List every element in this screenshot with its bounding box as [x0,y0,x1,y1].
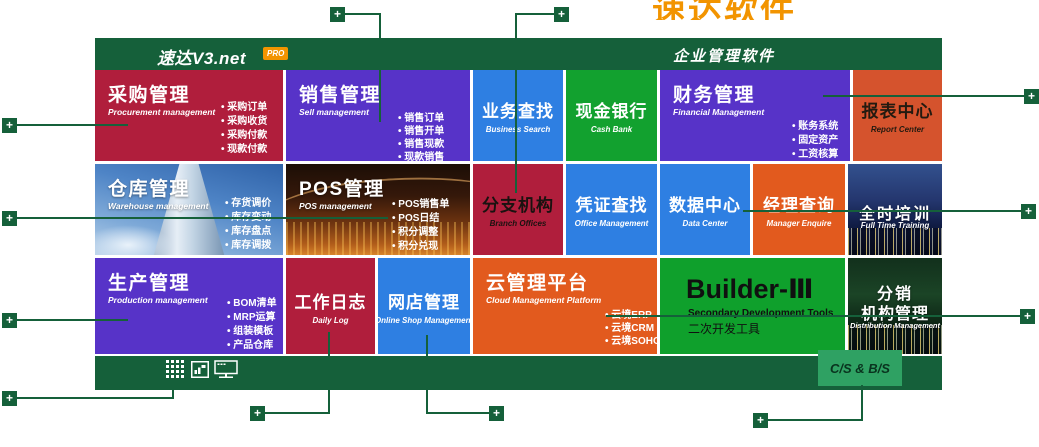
tile-title: 生产管理 [108,268,190,295]
tile-production[interactable]: 生产管理 Production management BOM清单 MRP运算 组… [95,258,283,354]
tile-cloud-platform[interactable]: 云管理平台 Cloud Management Platform 云境ERP 云境… [473,258,657,354]
tile-item[interactable]: 库存调拨 [225,239,271,253]
tile-item-list: 销售订单 销售开单 销售现款 现款销售 [398,112,444,161]
tile-title: 采购管理 [108,80,190,107]
plus-marker-top-1[interactable]: + [330,7,345,22]
tile-item[interactable]: 账务系统 [792,120,838,134]
tile-subtitle: Distribution Management [848,321,942,330]
plus-marker-bottom-1[interactable]: + [250,406,265,421]
tile-voucher-search[interactable]: 凭证查找 Office Management [566,164,657,255]
tile-business-search[interactable]: 业务查找 Business Search [473,70,563,161]
connector-line [426,335,428,414]
plus-marker-bottom-2[interactable]: + [489,406,504,421]
tile-item-list: 采购订单 采购收货 采购付款 现款付款 [221,101,267,157]
tile-item[interactable]: 积分兑现 [392,240,449,254]
plus-marker-right-3[interactable]: + [1020,309,1035,324]
tile-title: 业务查找 [482,97,554,122]
plus-marker-right-1[interactable]: + [1024,89,1039,104]
tile-item-list: BOM清单 MRP运算 组装模板 产品仓库 [227,297,277,353]
tile-item[interactable]: POS销售单 [392,198,449,212]
plus-marker-top-2[interactable]: + [554,7,569,22]
tile-item[interactable]: 组装模板 [227,325,277,339]
connector-line [516,13,555,15]
tile-item[interactable]: 存货调价 [225,197,271,211]
tile-title: POS管理 [299,174,385,201]
tile-procurement[interactable]: 采购管理 Procurement management 采购订单 采购收货 采购… [95,70,283,161]
tile-subtitle: Business Search [486,125,550,134]
tile-warehouse[interactable]: 仓库管理 Warehouse management 存货调价 库存变动 库存盘点… [95,164,283,255]
connector-line [861,385,863,421]
tile-subtitle: Manager Enquire [767,219,832,228]
plus-marker-left-3[interactable]: + [2,313,17,328]
tile-data-center[interactable]: 数据中心 Data Center [660,164,750,255]
tile-item[interactable]: 工资核算 [792,148,838,161]
connector-line [17,397,174,399]
connector-line [17,124,128,126]
tile-pos[interactable]: POS管理 POS management POS销售单 POS日结 积分调整 积… [286,164,470,255]
tile-subtitle: Online Shop Management [378,316,470,325]
tile-title: Builder-Ⅲ [686,274,814,305]
tile-subtitle: Cash Bank [591,125,632,134]
tile-item[interactable]: 销售现款 [398,138,444,151]
tile-item[interactable]: 销售订单 [398,112,444,125]
tile-title: 工作日志 [295,288,367,313]
tile-item[interactable]: 云境CRM [605,322,657,335]
tile-title: 报表中心 [862,97,934,122]
cloud-photo [95,225,173,255]
plus-marker-left-2[interactable]: + [2,211,17,226]
tile-subtitle: Full Time Training [848,221,942,230]
banner-text: 速达软件 [652,0,796,20]
tile-subtitle: Daily Log [312,316,348,325]
tile-subtitle: Procurement management [108,107,215,117]
connector-line [172,382,174,399]
tile-item[interactable]: 现款付款 [221,143,267,157]
connector-line [606,315,1020,317]
cs-bs-badge[interactable]: C/S & B/S [818,350,902,386]
tile-title: 经理查询 [763,191,835,216]
tile-title: 云管理平台 [486,268,589,295]
chart-frame-icon[interactable] [191,361,209,383]
tile-subtitle: Warehouse management [108,201,208,211]
connector-line [345,13,380,15]
tile-title: 分支机构 [482,191,554,216]
tile-report-center[interactable]: 报表中心 Report Center [853,70,942,161]
plus-marker-left-1[interactable]: + [2,118,17,133]
app-screen: 速达软件 速达V3.net PRO 企业管理软件 采购管理 Procuremen… [0,0,1039,447]
tile-title: 财务管理 [673,80,755,107]
tile-distribution[interactable]: 分销 机构管理 Distribution Management [848,258,942,354]
tile-item[interactable]: 库存盘点 [225,225,271,239]
tile-item[interactable]: 积分调整 [392,226,449,240]
tile-subtitle: Branch Offices [490,219,547,228]
network-monitor-icon[interactable] [214,360,238,384]
tile-item-list: 存货调价 库存变动 库存盘点 库存调拨 [225,197,271,253]
tile-item[interactable]: 产品仓库 [227,339,277,353]
connector-line [768,419,862,421]
tile-item[interactable]: BOM清单 [227,297,277,311]
tile-subtitle: Office Management [575,219,649,228]
tile-subtitle: Sell management [299,107,369,117]
tile-branch-offices[interactable]: 分支机构 Branch Offices [473,164,563,255]
tile-subtitle: Production management [108,295,208,305]
brand-logo: 速达V3.net [157,44,246,69]
connector-line [515,13,517,193]
plus-marker-right-2[interactable]: + [1021,204,1036,219]
tile-item[interactable]: 现款销售 [398,151,444,161]
header-bar: 速达V3.net PRO 企业管理软件 [95,38,942,70]
tile-financial[interactable]: 财务管理 Financial Management 账务系统 固定资产 工资核算 [660,70,850,161]
tile-item-list: 账务系统 固定资产 工资核算 [792,120,838,161]
plus-marker-left-4[interactable]: + [2,391,17,406]
city-night-photo [848,228,942,255]
tile-item[interactable]: 固定资产 [792,134,838,148]
tile-title: 数据中心 [669,191,741,216]
tile-subtitle: Financial Management [673,107,764,117]
connector-line [17,217,388,219]
plus-marker-bottom-3[interactable]: + [753,413,768,428]
tile-title: 网店管理 [388,288,460,313]
tile-item[interactable]: 销售开单 [398,125,444,138]
tile-title: 销售管理 [299,80,381,107]
connector-line [823,95,1024,97]
tile-subtitle: Report Center [871,125,924,134]
tile-online-shop[interactable]: 网店管理 Online Shop Management [378,258,470,354]
tile-daily-log[interactable]: 工作日志 Daily Log [286,258,375,354]
tile-subtitle: Cloud Management Platform [486,295,601,305]
cs-bs-label: C/S & B/S [830,361,890,376]
tile-item[interactable]: POS日结 [392,212,449,226]
tile-item-list: POS销售单 POS日结 积分调整 积分兑现 [392,198,449,254]
product-title: 企业管理软件 [673,45,775,66]
tile-builder[interactable]: Builder-Ⅲ Secondary Development Tools 二次… [660,258,845,354]
apps-grid-icon[interactable] [166,360,185,384]
connector-line [265,412,330,414]
tile-title: 凭证查找 [576,191,648,216]
tile-cash-bank[interactable]: 现金银行 Cash Bank [566,70,657,161]
tile-item[interactable]: MRP运算 [227,311,277,325]
pro-badge: PRO [263,47,288,60]
tile-item[interactable]: 采购订单 [221,101,267,115]
tile-item[interactable]: 云境SOHO [605,335,657,348]
tile-subtitle-cn: 二次开发工具 [688,320,760,337]
connector-line [17,319,128,321]
top-banner-cropped-text: 速达软件 [652,0,822,20]
connector-line [427,412,489,414]
tile-subtitle: Data Center [683,219,728,228]
tile-sell[interactable]: 销售管理 Sell management 销售订单 销售开单 销售现款 现款销售 [286,70,470,161]
tile-item[interactable]: 采购收货 [221,115,267,129]
connector-line [328,332,330,414]
tile-item[interactable]: 采购付款 [221,129,267,143]
connector-line [743,210,1021,212]
tile-subtitle: Secondary Development Tools [688,308,833,319]
tile-subtitle: POS management [299,201,372,211]
connector-line [379,13,381,122]
tile-title: 仓库管理 [108,174,190,201]
tile-title: 现金银行 [576,97,648,122]
